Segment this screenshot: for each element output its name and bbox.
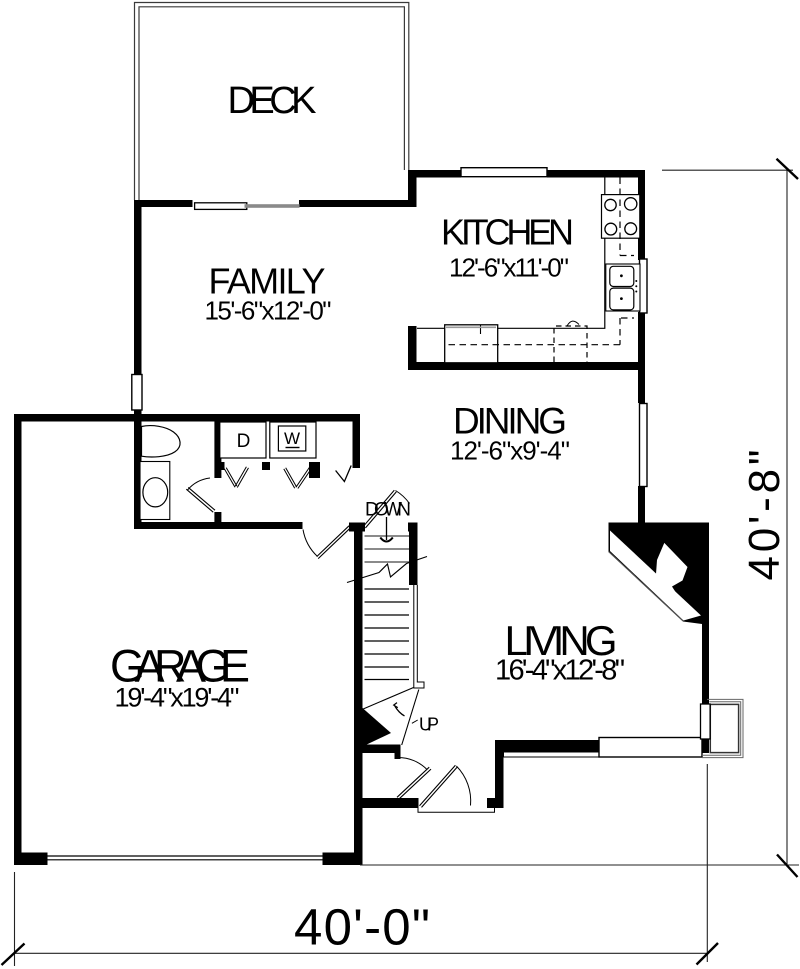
svg-text:19'-4"x19'-4": 19'-4"x19'-4": [115, 683, 240, 713]
svg-text:40'-0": 40'-0": [294, 899, 430, 956]
svg-text:DOWN: DOWN: [365, 500, 411, 521]
svg-text:15'-6"x12'-0": 15'-6"x12'-0": [205, 296, 332, 326]
svg-text:16'-4"x12'-8": 16'-4"x12'-8": [495, 655, 625, 687]
svg-text:12'-6"x11'-0": 12'-6"x11'-0": [449, 253, 569, 283]
svg-text:KITCHEN: KITCHEN: [441, 212, 574, 253]
svg-text:D: D: [237, 431, 251, 452]
svg-text:DECK: DECK: [228, 80, 317, 122]
svg-text:12'-6"x9'-4": 12'-6"x9'-4": [450, 436, 570, 466]
svg-text:W: W: [284, 429, 300, 448]
svg-text:UP: UP: [419, 715, 439, 735]
